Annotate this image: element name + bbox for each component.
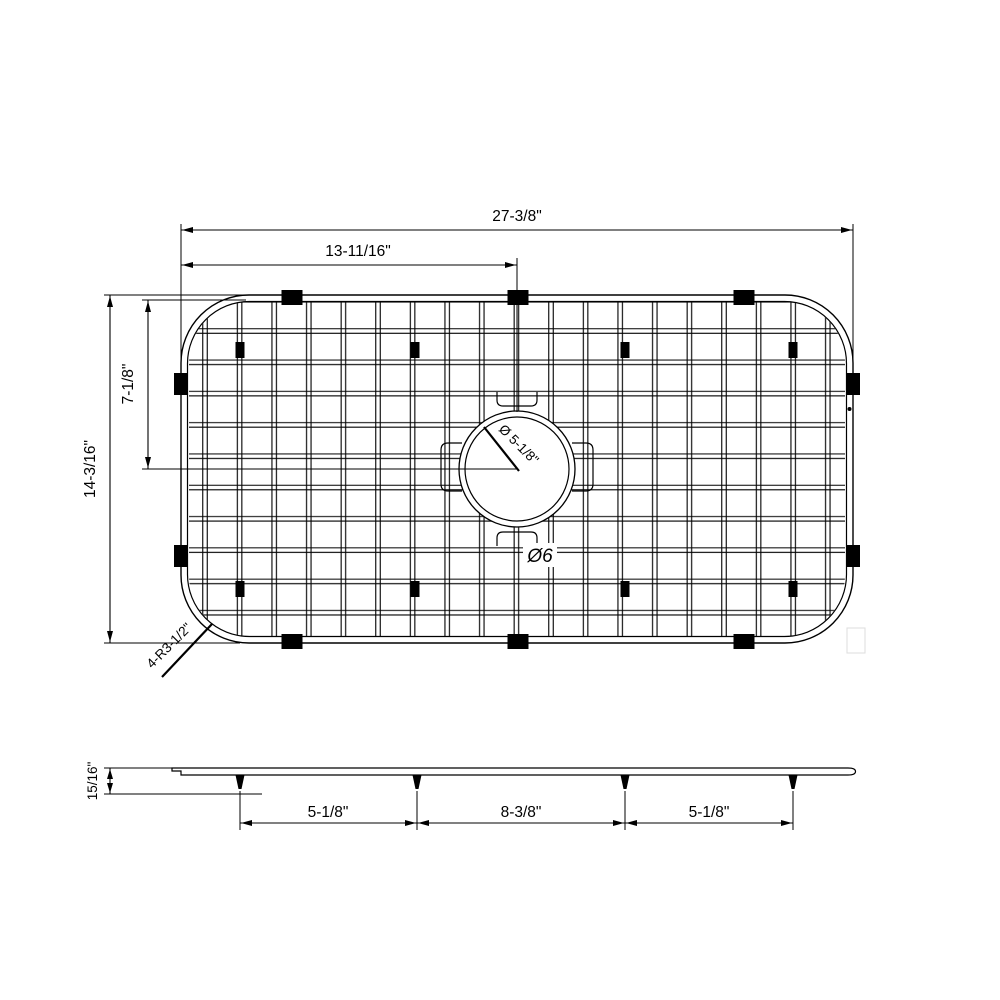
side-feet [236,775,798,789]
foot-spacing-left-label: 5-1/8" [308,804,349,821]
corner-radius-label: 4-R3-1/2" [144,620,195,671]
ghost-watermark-square [847,628,865,653]
foot-spacing-right-label: 5-1/8" [689,804,730,821]
sink-grid-drawing: 27-3/8" 13-11/16" 14-3/16" 7-1/8" Ø 5-1/… [0,0,1000,1000]
drawing-page: 27-3/8" 13-11/16" 14-3/16" 7-1/8" Ø 5-1/… [0,0,1000,1000]
hole-note-label: Ø6 [526,546,553,567]
side-view: 15/16" 5-1/8" 8-3/8" 5-1/8" [85,762,856,830]
hole-offset-label: 13-11/16" [325,243,391,260]
overall-width-label: 27-3/8" [492,208,541,225]
feet-spacing-dimensions: 5-1/8" 8-3/8" 5-1/8" [240,791,793,830]
side-profile-bar [172,768,856,775]
overall-depth-label: 14-3/16" [82,440,99,498]
hole-vertical-label: 7-1/8" [120,364,137,405]
foot-spacing-center-label: 8-3/8" [501,804,542,821]
stray-dot [848,407,852,411]
thickness-label: 15/16" [85,762,100,801]
